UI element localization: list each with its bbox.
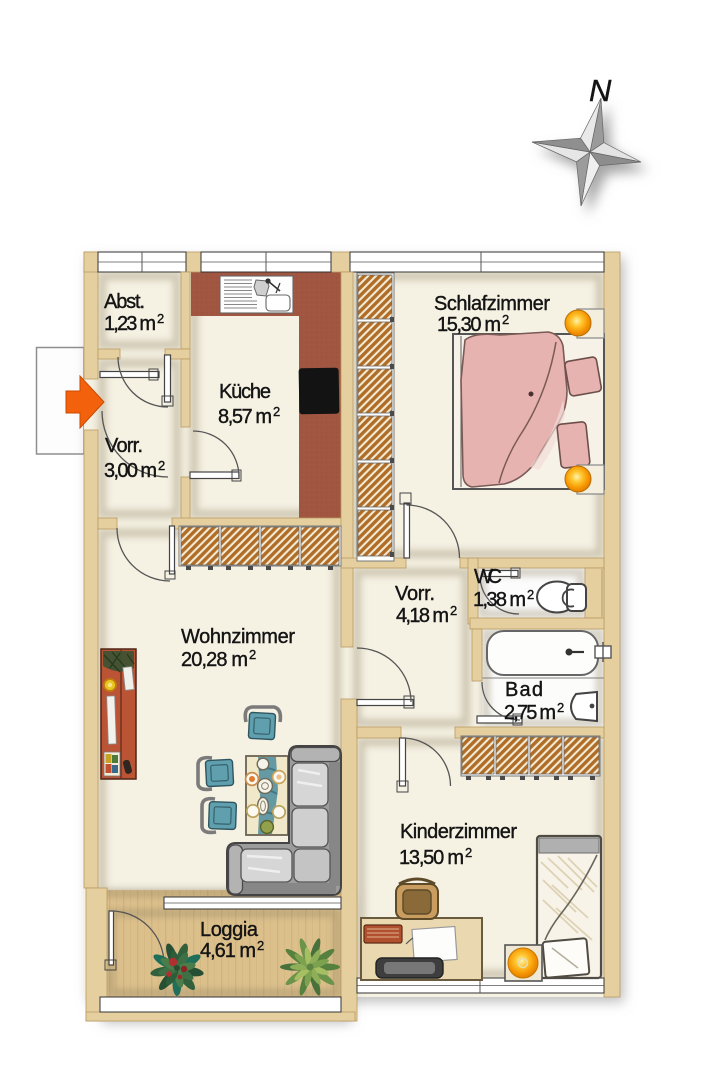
- svg-text:2: 2: [273, 404, 280, 419]
- svg-text:1,23 m: 1,23 m: [104, 313, 156, 335]
- svg-text:1,38 m: 1,38 m: [473, 589, 526, 611]
- svg-text:13,50 m: 13,50 m: [399, 847, 464, 869]
- svg-text:2,75 m: 2,75 m: [504, 702, 556, 724]
- svg-text:N: N: [589, 73, 612, 108]
- svg-text:20,28 m: 20,28 m: [181, 649, 248, 671]
- svg-text:2: 2: [257, 938, 264, 953]
- svg-text:4,61 m: 4,61 m: [200, 940, 256, 962]
- svg-text:2: 2: [158, 458, 165, 473]
- svg-text:Schlafzimmer: Schlafzimmer: [434, 293, 550, 315]
- svg-text:8,57 m: 8,57 m: [218, 406, 272, 428]
- svg-text:Wohnzimmer: Wohnzimmer: [181, 626, 295, 648]
- svg-text:2: 2: [465, 845, 472, 860]
- svg-text:Kinderzimmer: Kinderzimmer: [400, 821, 517, 843]
- svg-text:Bad: Bad: [505, 679, 543, 701]
- svg-text:Loggia: Loggia: [200, 919, 259, 941]
- svg-text:2: 2: [557, 700, 564, 715]
- svg-text:2: 2: [157, 311, 164, 326]
- svg-text:2: 2: [527, 587, 534, 602]
- svg-text:15,30 m: 15,30 m: [437, 314, 501, 336]
- svg-text:3,00 m: 3,00 m: [104, 460, 157, 482]
- svg-text:WC: WC: [474, 566, 502, 588]
- svg-text:4,18 m: 4,18 m: [396, 605, 449, 627]
- svg-text:2: 2: [450, 603, 457, 618]
- svg-text:Küche: Küche: [219, 381, 271, 403]
- svg-text:Vorr.: Vorr.: [395, 583, 435, 605]
- svg-text:2: 2: [249, 647, 256, 662]
- svg-text:Vorr.: Vorr.: [105, 435, 143, 457]
- svg-text:Abst.: Abst.: [104, 291, 145, 313]
- svg-text:2: 2: [502, 312, 509, 327]
